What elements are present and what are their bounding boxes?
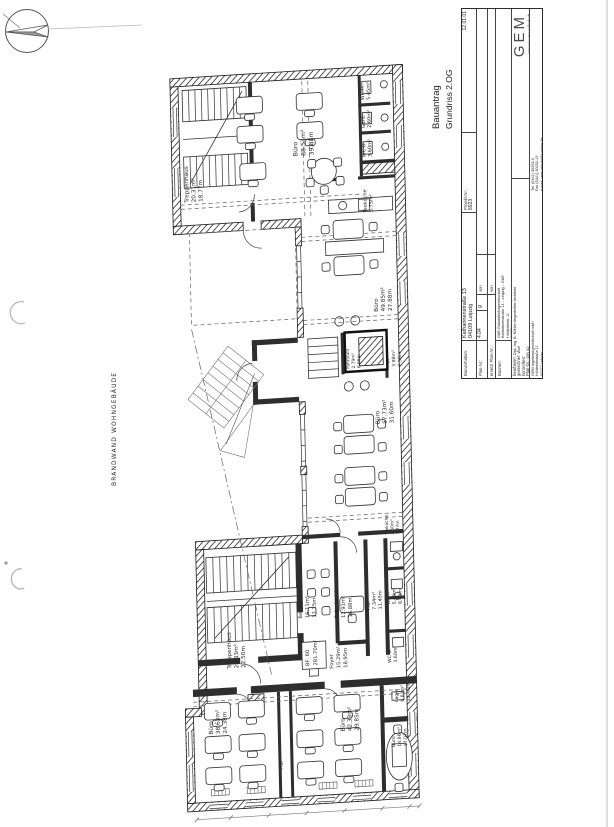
bauvorhaben-city: 04109 Leipzig (469, 215, 475, 338)
bauherr-line4: 04277 Leipzig (510, 11, 511, 338)
svg-text:Foyer: Foyer (329, 653, 335, 669)
svg-text:Sekretariat: Sekretariat (334, 589, 341, 618)
svg-text:Büro: Büro (374, 298, 380, 312)
svg-text:18.95m: 18.95m (343, 648, 349, 668)
floor-area-box: BF: 60 281.70m² (302, 640, 327, 670)
svg-text:11.45m: 11.45m (378, 590, 384, 610)
plan-nr-label: Plan-Nr.: (477, 340, 487, 378)
svg-text:WC-D: WC-D (387, 649, 393, 663)
svg-text:3.60m²: 3.60m² (393, 645, 399, 662)
svg-text:WC-H: WC-H (386, 591, 392, 604)
svg-text:Büro: Büro (341, 717, 347, 731)
svg-text:Fahrstuhl: Fahrstuhl (345, 349, 351, 369)
von-label: von (477, 254, 487, 294)
svg-text:3.98m²: 3.98m² (391, 350, 397, 367)
svg-text:17.07m: 17.07m (403, 728, 409, 747)
svg-text:16.11m²: 16.11m² (305, 596, 311, 618)
gem-logo-subtext: Ingenieurgesellschaft (527, 11, 529, 176)
svg-text:29.85m: 29.85m (354, 708, 360, 730)
svg-text:5.45m²: 5.45m² (366, 82, 372, 100)
svg-text:18.77m: 18.77m (198, 180, 204, 202)
projekt-value: 8923 (469, 135, 475, 210)
plan-suffix: g (477, 294, 487, 310)
drawing-title-label: Grundriss 2.OG (443, 51, 455, 129)
svg-text:Treppenhaus: Treppenhaus (184, 166, 191, 204)
svg-text:14.96m²: 14.96m² (397, 727, 403, 747)
svg-text:Büro: Büro (292, 141, 299, 156)
svg-text:Büro: Büro (209, 720, 215, 734)
svg-text:3.60m²: 3.60m² (367, 139, 373, 157)
svg-text:57.73m²: 57.73m² (381, 399, 388, 424)
svg-text:28.33m²: 28.33m² (233, 644, 240, 669)
svg-text:6.66m: 6.66m (356, 354, 362, 368)
svg-text:15.29m²: 15.29m² (336, 646, 342, 668)
svg-text:17.25m: 17.25m (312, 597, 318, 617)
firm-line6: e-mail: gem-leipzig@t-online.de (540, 11, 543, 191)
svg-text:31.60m: 31.60m (389, 401, 395, 423)
svg-text:Teeküche: Teeküche (384, 514, 390, 536)
svg-text:Flur: Flur (279, 760, 285, 770)
svg-text:3.77m: 3.77m (395, 520, 401, 534)
svg-text:281.70m²: 281.70m² (313, 640, 319, 666)
drawing-title-stamp: Bauantrag Grundriss 2.OG (431, 51, 455, 129)
svg-text:2.60m²: 2.60m² (366, 110, 372, 128)
title-block: Bauvorhaben: Katharinenstraße 13 04109 L… (461, 8, 543, 379)
plangr-label: Plan-Gr.: (525, 359, 529, 376)
interior-partitions (179, 73, 419, 803)
svg-text:BF: 60: BF: 60 (305, 650, 311, 667)
svg-text:5.43m²: 5.43m² (391, 587, 397, 604)
gezeichnet-value: Wolf (517, 346, 521, 354)
svg-text:16.88m: 16.88m (348, 597, 354, 617)
svg-text:8.43m: 8.43m (398, 588, 404, 604)
scanned-floor-plan-sheet: BRANDWAND WOHNGEBÄUDE (0, 0, 614, 827)
svg-text:Flur: Flur (385, 358, 391, 367)
svg-text:24.38m: 24.38m (222, 711, 228, 733)
plan-nr-value: 4.04 (477, 310, 487, 340)
ersetzt-von-label: von (488, 254, 495, 294)
svg-text:Büro: Büro (375, 410, 381, 424)
svg-text:Treppenhaus: Treppenhaus (227, 632, 234, 670)
svg-text:5.75m²: 5.75m² (368, 194, 374, 212)
bauvorhaben-label: Bauvorhaben: (462, 340, 476, 378)
courtyard-dashed-outline (189, 227, 297, 325)
svg-text:88.53m²: 88.53m² (300, 129, 307, 156)
svg-text:Besprechung: Besprechung (297, 584, 304, 618)
ersetzt-label: ersetzt Plan-Nr.: (488, 294, 495, 378)
svg-text:Lager: Lager (394, 689, 400, 703)
svg-text:22.50m: 22.50m (241, 646, 247, 668)
north-arrow-compass-icon (3, 10, 142, 53)
external-stair-wedge (219, 405, 254, 459)
svg-text:12.91m²: 12.91m² (341, 596, 347, 618)
svg-text:6.81m²: 6.81m² (400, 685, 406, 702)
bauherr-label: Bauherr: (496, 340, 511, 378)
svg-text:38.63m²: 38.63m² (214, 710, 221, 735)
firm-line3: 04277 Leipzig (540, 195, 543, 376)
svg-text:2.60m²: 2.60m² (389, 519, 395, 535)
boundary-note: BRANDWAND WOHNGEBÄUDE (111, 372, 118, 486)
date-value: 12.01.01 (462, 9, 476, 132)
gem-logo: GEM (513, 11, 527, 176)
svg-text:42.33m²: 42.33m² (346, 707, 353, 732)
plangr-value: DIN A2 (526, 346, 529, 358)
svg-text:39.88m: 39.88m (308, 131, 315, 155)
svg-text:2.79m²: 2.79m² (351, 352, 357, 368)
doc-type-label: Bauantrag (431, 51, 443, 129)
svg-text:20.31m²: 20.31m² (190, 178, 197, 203)
svg-text:7.58m: 7.58m (397, 351, 403, 367)
svg-text:27.88m: 27.88m (388, 289, 394, 311)
svg-text:BRANDWAND WOHNGEBÄUDE: BRANDWAND WOHNGEBÄUDE (111, 372, 118, 486)
svg-text:49.85m²: 49.85m² (380, 287, 387, 312)
svg-text:Büro: Büro (391, 736, 397, 747)
svg-text:12.46m: 12.46m (406, 683, 412, 702)
bearbeitet-value2: Angestellter Architekt (513, 287, 517, 323)
